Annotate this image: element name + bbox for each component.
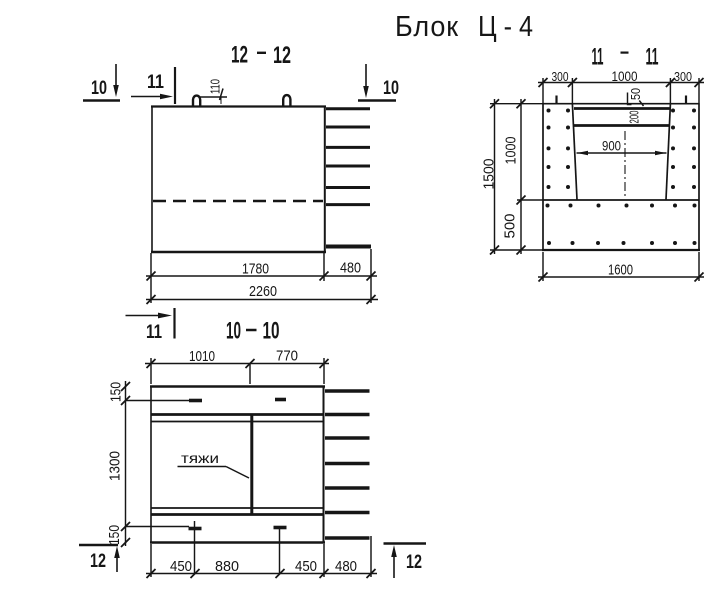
svg-text:50: 50 [628, 88, 643, 100]
svg-text:10: 10 [263, 318, 280, 345]
svg-text:10: 10 [91, 78, 107, 99]
svg-text:480: 480 [335, 558, 357, 575]
svg-text:1500: 1500 [481, 159, 498, 190]
svg-text:12: 12 [231, 42, 248, 69]
svg-text:2260: 2260 [249, 283, 277, 300]
svg-text:Ц - 4: Ц - 4 [478, 11, 533, 43]
svg-text:12: 12 [406, 552, 422, 573]
svg-text:1600: 1600 [608, 262, 633, 279]
svg-text:10: 10 [226, 318, 241, 345]
svg-text:11: 11 [147, 72, 164, 93]
svg-text:880: 880 [215, 558, 239, 575]
svg-text:300: 300 [674, 69, 692, 84]
svg-text:1780: 1780 [242, 261, 269, 278]
svg-text:12: 12 [273, 42, 291, 69]
svg-text:Блок: Блок [395, 11, 459, 43]
svg-text:11: 11 [646, 44, 659, 71]
svg-text:тяжи: тяжи [181, 450, 219, 466]
svg-text:900: 900 [602, 138, 621, 154]
svg-text:150: 150 [108, 382, 125, 402]
svg-text:300: 300 [552, 69, 569, 84]
svg-text:110: 110 [209, 79, 223, 94]
svg-text:1010: 1010 [189, 348, 215, 365]
svg-text:200: 200 [627, 111, 642, 124]
svg-text:450: 450 [170, 558, 192, 575]
svg-text:12: 12 [90, 551, 106, 572]
svg-text:1300: 1300 [107, 451, 124, 481]
svg-text:10: 10 [383, 78, 399, 99]
svg-text:11: 11 [592, 44, 604, 71]
svg-text:1000: 1000 [612, 69, 638, 84]
svg-text:11: 11 [146, 322, 162, 343]
svg-text:500: 500 [502, 214, 519, 239]
svg-text:150: 150 [106, 525, 123, 545]
svg-text:1000: 1000 [503, 137, 520, 165]
svg-text:480: 480 [340, 260, 361, 277]
svg-text:450: 450 [295, 558, 317, 575]
svg-text:770: 770 [276, 348, 298, 365]
